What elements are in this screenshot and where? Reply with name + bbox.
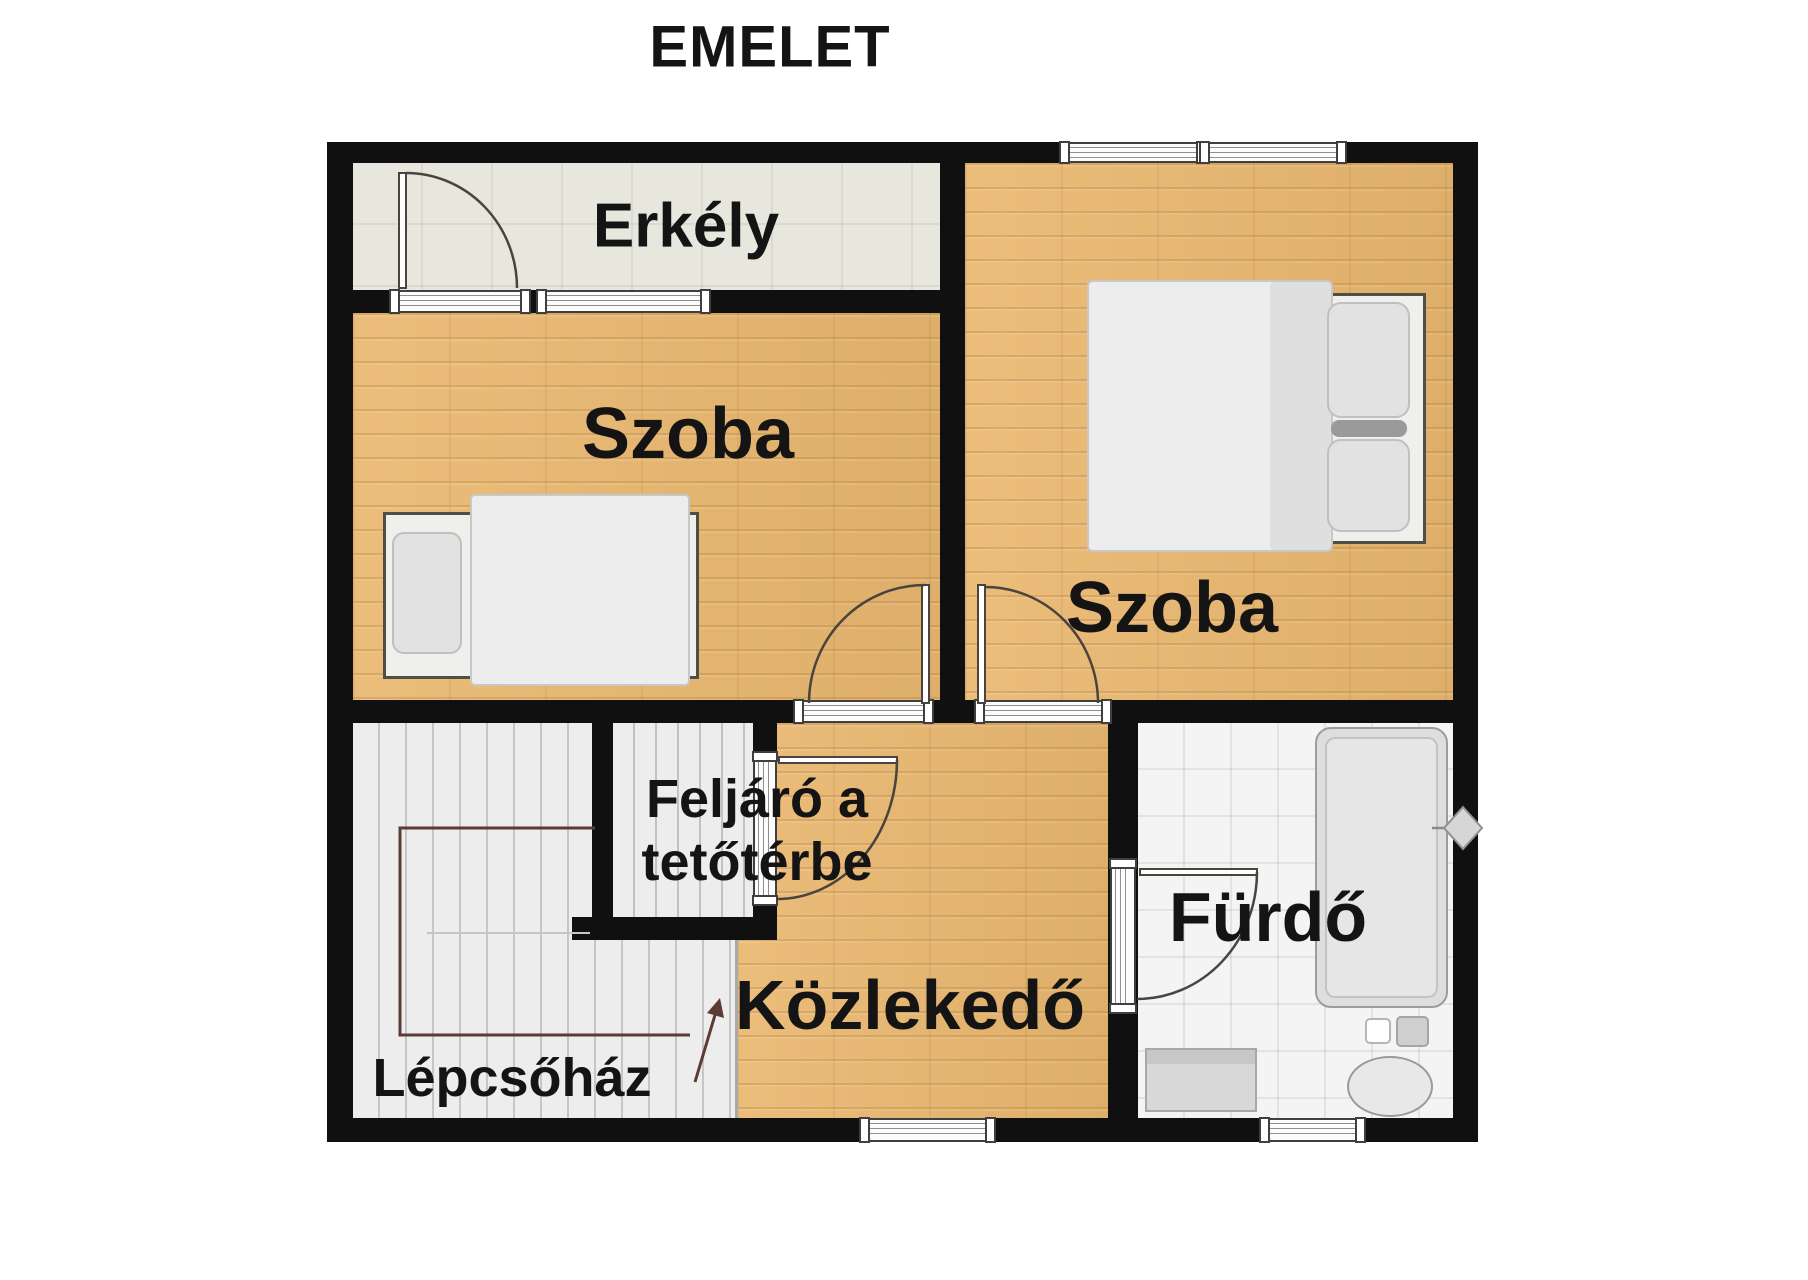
- hallway-label: Közlekedő: [735, 965, 1085, 1045]
- attic-access-label-line1: Feljáró a: [646, 769, 868, 829]
- single-bed-duvet: [470, 494, 690, 686]
- toilet-flush-button: [1365, 1018, 1391, 1044]
- sink-backsplash: [1147, 1050, 1255, 1064]
- attic-access-label: Feljáró a tetőtérbe: [547, 768, 967, 894]
- window-icon-bedroom-right-2: [1203, 142, 1343, 163]
- wall-attic-stair-bottom: [572, 917, 777, 940]
- window-icon-hallway: [863, 1118, 992, 1142]
- toilet-cistern: [1396, 1016, 1429, 1047]
- wall-room-divider: [940, 142, 965, 723]
- bedroom-left-label: Szoba: [582, 393, 794, 475]
- bedroom-right-label: Szoba: [1066, 567, 1278, 649]
- door-threshold-bathroom: [1110, 862, 1136, 1010]
- attic-access-label-line2: tetőtérbe: [641, 832, 872, 892]
- double-bed-bolster: [1331, 420, 1407, 437]
- window-icon-balcony: [540, 290, 707, 313]
- wall-right: [1453, 142, 1478, 1142]
- window-icon-bedroom-right-1: [1063, 142, 1203, 163]
- bathroom-label: Fürdő: [1169, 877, 1367, 957]
- single-bed-pillow: [392, 532, 462, 654]
- balcony-door-threshold: [393, 290, 527, 313]
- page-title: EMELET: [649, 14, 890, 81]
- staircase-label: Lépcsőház: [372, 1047, 651, 1109]
- toilet-icon: [1347, 1056, 1433, 1117]
- double-bed-duvet-fold: [1270, 282, 1331, 550]
- door-threshold-bedroom-right: [978, 700, 1108, 723]
- window-icon-bathroom: [1263, 1118, 1362, 1142]
- bathtub-basin: [1325, 737, 1438, 998]
- floorplan-canvas: EMELET: [0, 0, 1808, 1280]
- double-bed-pillow-top: [1327, 302, 1410, 418]
- double-bed-pillow-bottom: [1327, 439, 1410, 532]
- door-threshold-bedroom-left: [797, 700, 930, 723]
- balcony-label: Erkély: [593, 191, 779, 262]
- wall-left: [327, 142, 353, 1142]
